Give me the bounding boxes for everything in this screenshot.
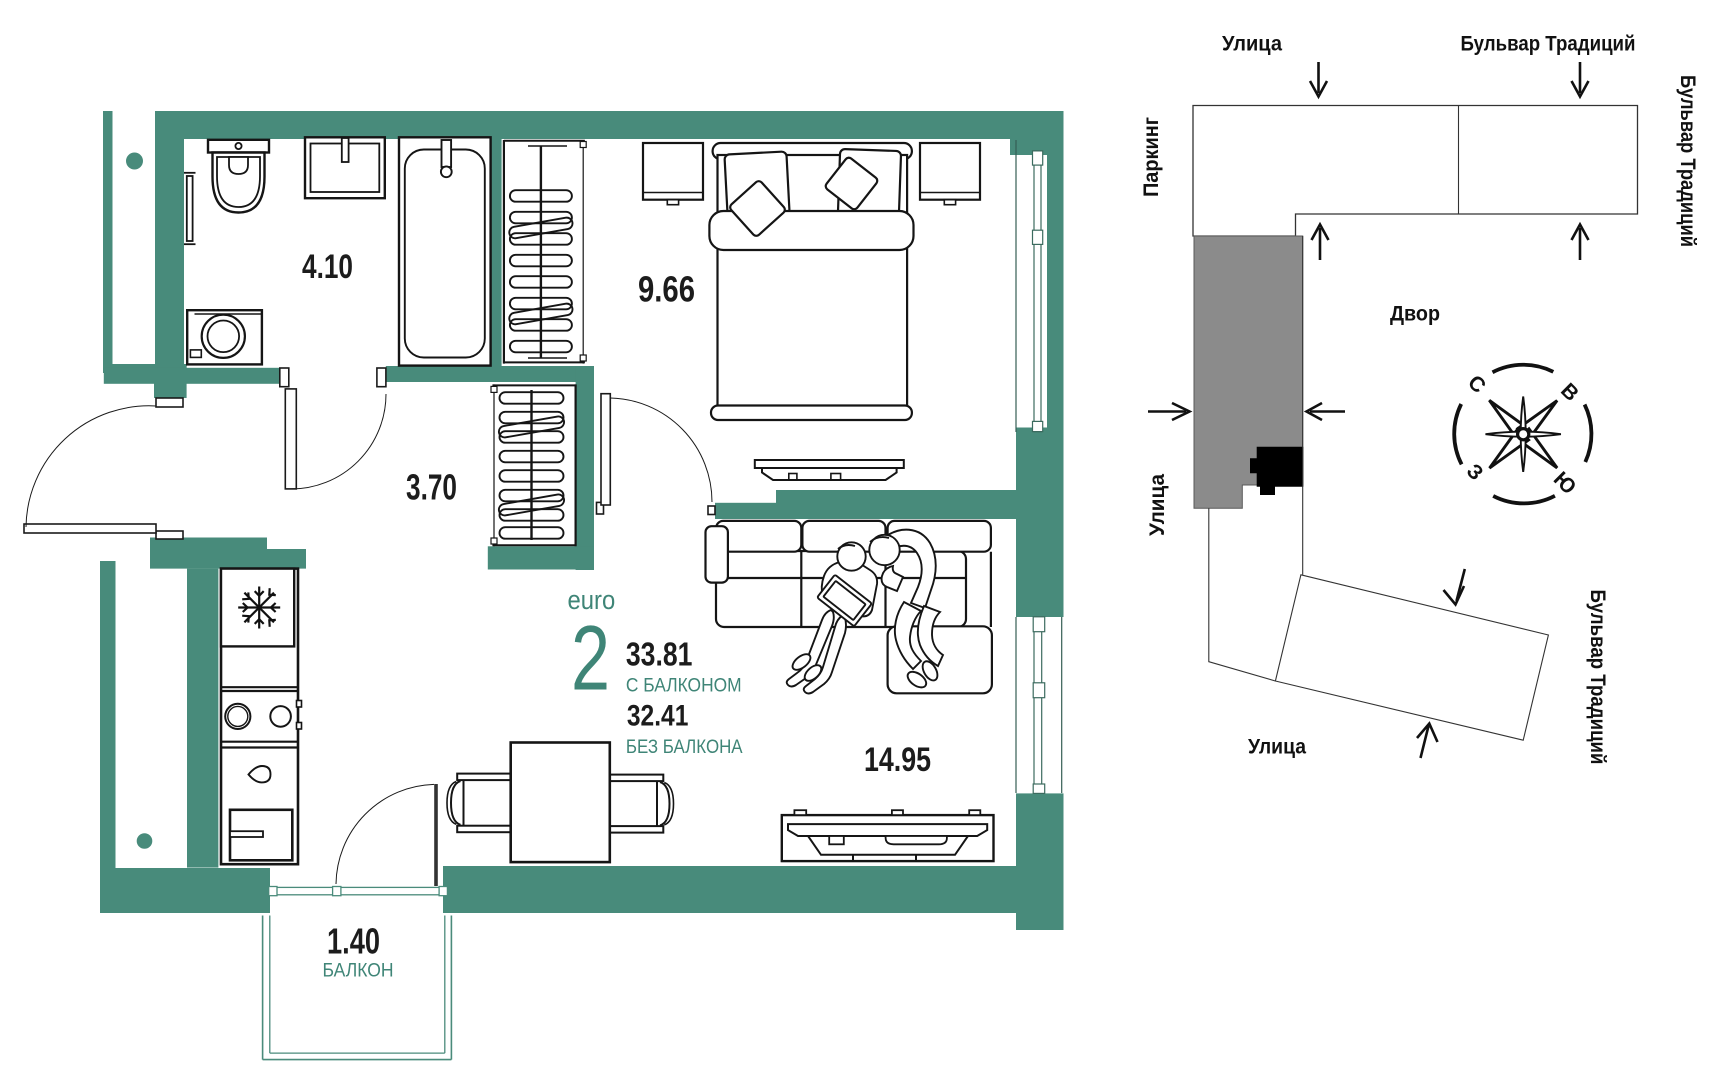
svg-text:В: В bbox=[1556, 379, 1583, 406]
svg-text:Улица: Улица bbox=[1248, 736, 1306, 759]
svg-text:БЕЗ БАЛКОНА: БЕЗ БАЛКОНА bbox=[626, 736, 743, 758]
svg-text:З: З bbox=[1462, 460, 1488, 486]
svg-text:Улица: Улица bbox=[1146, 474, 1169, 536]
svg-text:4.10: 4.10 bbox=[302, 248, 353, 286]
svg-text:1.40: 1.40 bbox=[327, 921, 380, 962]
svg-text:3.70: 3.70 bbox=[406, 467, 457, 508]
svg-text:32.41: 32.41 bbox=[627, 700, 689, 733]
svg-text:С: С bbox=[1463, 371, 1490, 398]
svg-text:33.81: 33.81 bbox=[626, 635, 693, 672]
svg-text:С БАЛКОНОМ: С БАЛКОНОМ bbox=[626, 675, 742, 697]
svg-text:14.95: 14.95 bbox=[864, 741, 931, 779]
svg-text:Улица: Улица bbox=[1222, 33, 1282, 56]
svg-text:2: 2 bbox=[571, 608, 610, 710]
svg-text:Двор: Двор bbox=[1390, 303, 1440, 326]
svg-text:Паркинг: Паркинг bbox=[1140, 117, 1163, 197]
svg-text:9.66: 9.66 bbox=[638, 269, 695, 310]
svg-text:Бульвар Традиций: Бульвар Традиций bbox=[1461, 33, 1636, 56]
svg-text:Бульвар Традиций: Бульвар Традиций bbox=[1586, 590, 1609, 765]
svg-text:Бульвар Традиций: Бульвар Традиций bbox=[1676, 75, 1699, 247]
svg-text:БАЛКОН: БАЛКОН bbox=[323, 961, 394, 982]
